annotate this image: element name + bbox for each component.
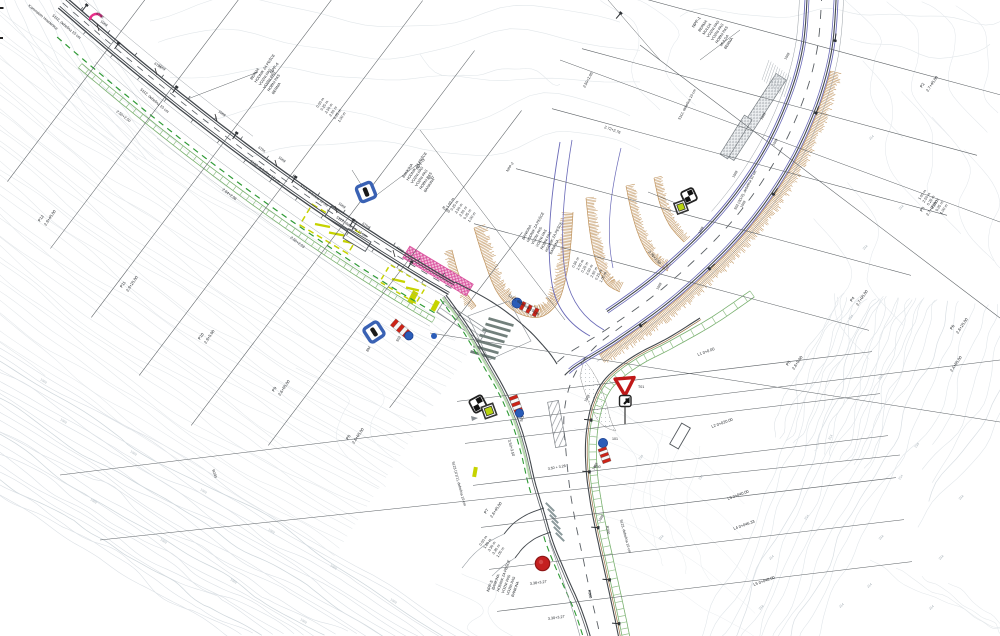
svg-text:R50: R50 (594, 465, 601, 469)
svg-text:T01: T01 (638, 385, 644, 389)
svg-text:101: 101 (612, 437, 618, 441)
